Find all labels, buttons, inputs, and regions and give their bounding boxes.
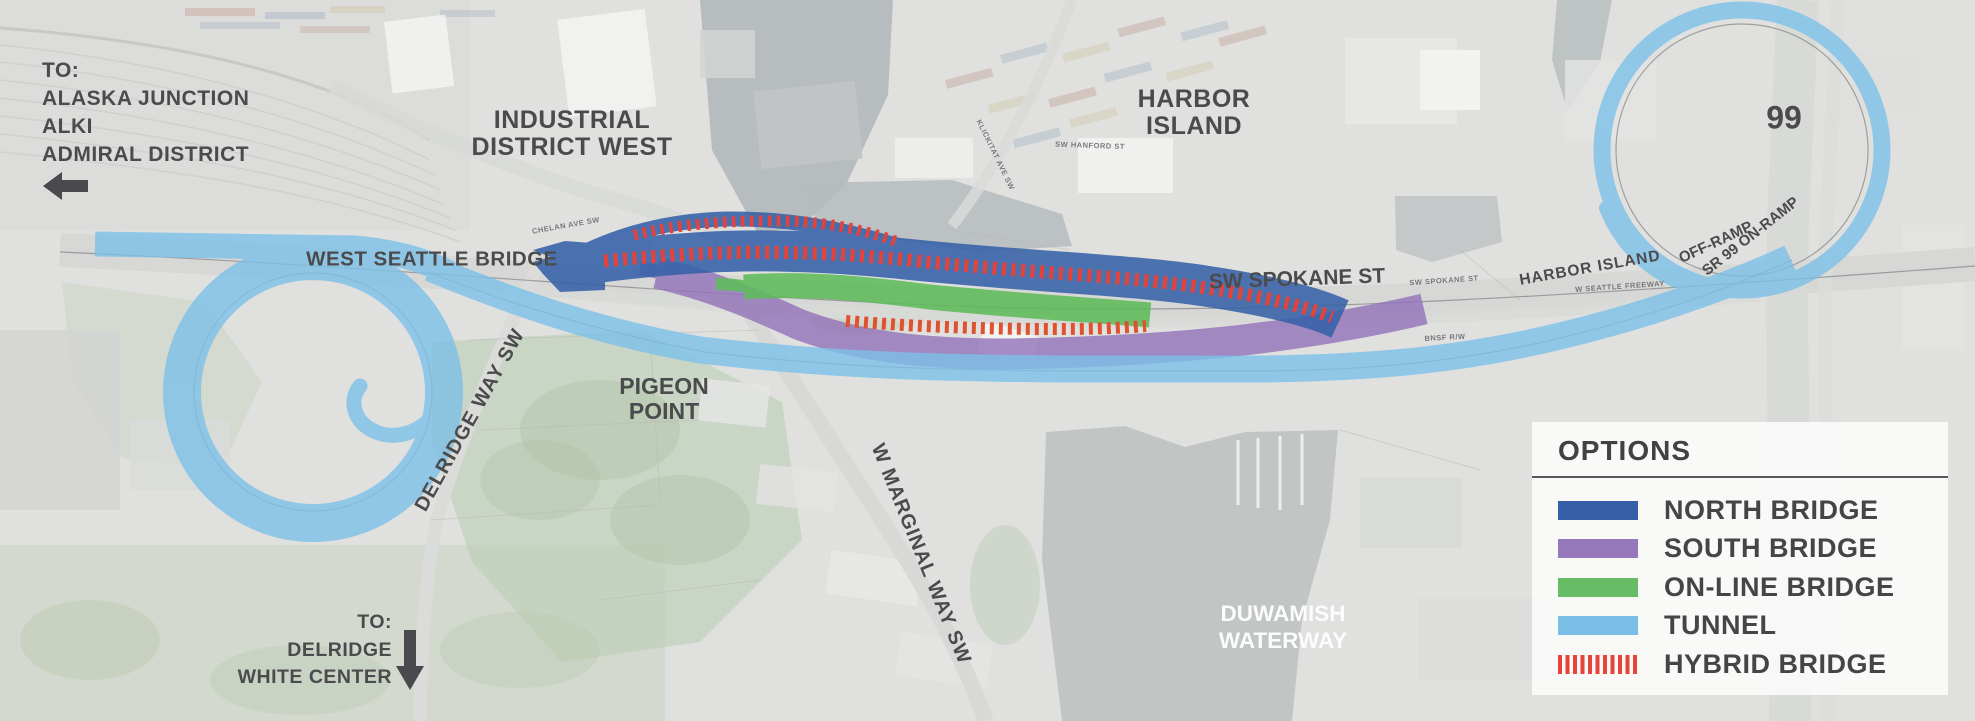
west-seattle-bridge-label: WEST SEATTLE BRIDGE: [306, 249, 558, 272]
area-label-line: POINT: [619, 399, 708, 424]
directions-northwest-line: ALKI: [42, 113, 249, 141]
directions-northwest-line: ALASKA JUNCTION: [42, 85, 249, 113]
directions-south-line: DELRIDGE: [152, 637, 392, 665]
legend-label: SOUTH BRIDGE: [1664, 533, 1877, 564]
legend-title: OPTIONS: [1558, 435, 1948, 467]
area-label-line: HARBOR: [1138, 86, 1251, 113]
legend-label: TUNNEL: [1664, 610, 1777, 641]
legend-row-south-bridge: SOUTH BRIDGE: [1558, 530, 1948, 569]
legend-label: NORTH BRIDGE: [1664, 495, 1879, 526]
directions-northwest-label: TO: ALASKA JUNCTION ALKI ADMIRAL DISTRIC…: [42, 57, 249, 169]
south-bridge-swatch: [1558, 539, 1638, 558]
legend-panel: OPTIONS NORTH BRIDGE SOUTH BRIDGE ON-LIN…: [1532, 422, 1948, 695]
area-label-line: INDUSTRIAL: [472, 107, 673, 134]
hybrid-bridge-swatch: [1558, 655, 1638, 674]
directions-south-label: TO: DELRIDGE WHITE CENTER: [152, 609, 392, 692]
area-label-line: DISTRICT WEST: [472, 134, 673, 161]
legend-row-tunnel: TUNNEL: [1558, 607, 1948, 646]
options-map: TO: ALASKA JUNCTION ALKI ADMIRAL DISTRIC…: [0, 0, 1975, 721]
directions-south-line: TO:: [152, 609, 392, 637]
area-label-line: WATERWAY: [1219, 627, 1347, 654]
area-harbor-island-label: HARBOR ISLAND: [1138, 86, 1251, 140]
legend-label: ON-LINE BRIDGE: [1664, 572, 1895, 603]
online-bridge-swatch: [1558, 578, 1638, 597]
directions-south-line: WHITE CENTER: [152, 664, 392, 692]
area-duwamish-waterway-label: DUWAMISH WATERWAY: [1219, 600, 1347, 654]
directions-northwest-line: ADMIRAL DISTRICT: [42, 141, 249, 169]
legend-row-online-bridge: ON-LINE BRIDGE: [1558, 568, 1948, 607]
highway-99-label: 99: [1766, 100, 1802, 135]
directions-northwest-line: TO:: [42, 57, 249, 85]
tunnel-swatch: [1558, 616, 1638, 635]
area-label-line: PIGEON: [619, 374, 708, 399]
legend-divider: [1532, 476, 1948, 478]
legend-row-hybrid-bridge: HYBRID BRIDGE: [1558, 645, 1948, 684]
area-pigeon-point-label: PIGEON POINT: [619, 374, 708, 424]
legend-label: HYBRID BRIDGE: [1664, 649, 1887, 680]
legend-row-north-bridge: NORTH BRIDGE: [1558, 491, 1948, 530]
legend-rows: NORTH BRIDGE SOUTH BRIDGE ON-LINE BRIDGE…: [1558, 491, 1948, 684]
area-label-line: ISLAND: [1138, 113, 1251, 140]
area-industrial-district-west-label: INDUSTRIAL DISTRICT WEST: [472, 107, 673, 161]
north-bridge-swatch: [1558, 501, 1638, 520]
area-label-line: DUWAMISH: [1219, 600, 1347, 627]
